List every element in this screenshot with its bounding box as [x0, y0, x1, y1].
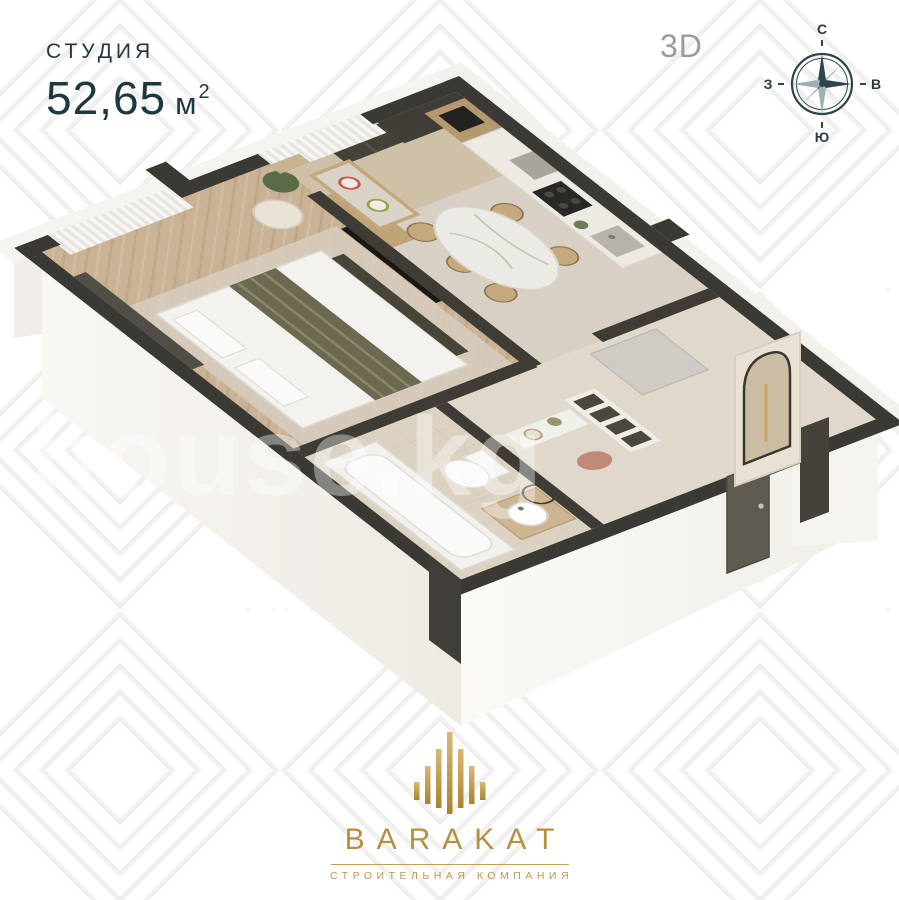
area-line: 52,65м2 [46, 71, 211, 125]
plan-type-label: СТУДИЯ [46, 40, 211, 64]
brand-divider [331, 864, 569, 865]
compass-label-south: Ю [815, 129, 829, 144]
brand-name: BARAKAT [0, 823, 899, 857]
title-block: СТУДИЯ 52,65м2 [46, 40, 211, 125]
view-3d-label: 3D [660, 28, 703, 65]
door-side-wall-end [800, 417, 829, 523]
compass: С В Ю З [760, 20, 884, 144]
door-handle [758, 503, 763, 508]
compass-label-west: З [764, 76, 773, 92]
brand-tagline: СТРОИТЕЛЬНАЯ КОМПАНИЯ [0, 870, 899, 882]
area-unit: м [175, 86, 197, 121]
compass-label-north: С [817, 21, 827, 37]
brand-logo-icon [404, 729, 496, 817]
compass-label-east: В [871, 76, 881, 92]
brand-logo-bars [414, 732, 486, 814]
area-value: 52,65 [46, 72, 166, 124]
render-canvas: { "page": { "width": 899, "height": 900,… [0, 0, 899, 900]
compass-rose: С В Ю З [760, 20, 884, 144]
area-exponent: 2 [198, 81, 210, 103]
arch-wardrobe [735, 332, 800, 486]
brand-block: BARAKAT СТРОИТЕЛЬНАЯ КОМПАНИЯ [0, 729, 899, 882]
